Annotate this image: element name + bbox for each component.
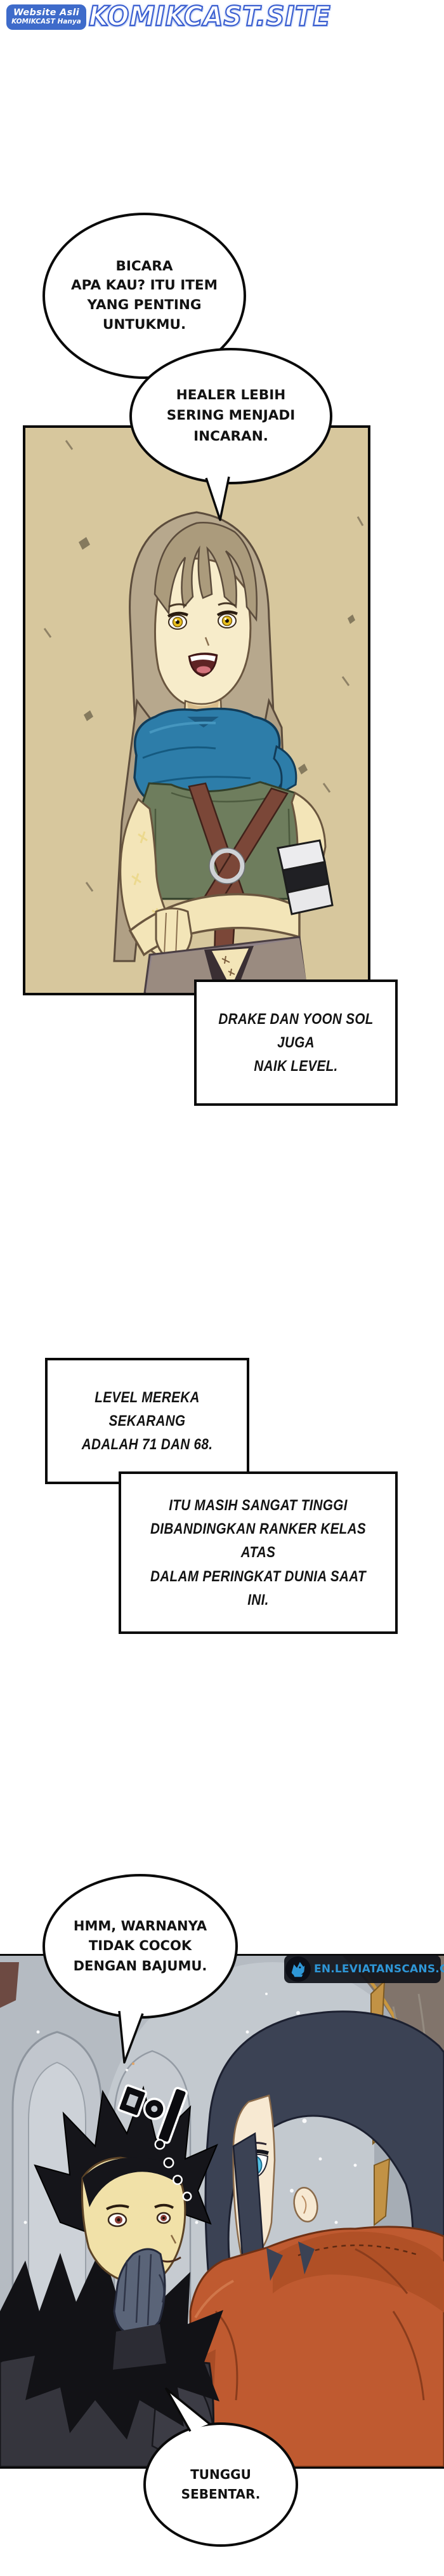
speech-bubble-4-text: TUNGGU SEBENTAR. xyxy=(181,2465,261,2504)
caption-box-level: LEVEL MEREKA SEKARANG ADALAH 71 DAN 68. xyxy=(45,1358,249,1484)
bubble-3-tail xyxy=(101,2000,152,2066)
speech-bubble-3: HMM, WARNANYA TIDAK COCOK DENGAN BAJUMU. xyxy=(42,1874,238,2019)
caption-box-drake: DRAKE DAN YOON SOL JUGA NAIK LEVEL. xyxy=(194,979,398,1106)
speech-bubble-1-text: BICARA APA KAU? ITU ITEM YANG PENTING UN… xyxy=(71,257,218,335)
girl-character-art xyxy=(190,2012,444,2467)
watermark-text: EN.LEVIATANSCANS.COM xyxy=(314,1963,444,1975)
caption-box-ranking: ITU MASIH SANGAT TINGGI DIBANDINGKAN RAN… xyxy=(119,1471,398,1634)
speech-bubble-2-text: HEALER LEBIH SERING MENJADI INCARAN. xyxy=(167,385,295,447)
site-badge-line1: Website Asli xyxy=(13,8,79,18)
speech-bubble-2: HEALER LEBIH SERING MENJADI INCARAN. xyxy=(129,348,332,484)
site-badge-line2: KOMIKCAST Hanya xyxy=(11,18,81,26)
scene-background-art xyxy=(0,1956,444,2467)
healer-character-art xyxy=(25,428,368,993)
site-badge: Website Asli KOMIKCAST Hanya xyxy=(6,4,86,30)
bubble-4-tail xyxy=(159,2380,216,2438)
speech-bubble-4: TUNGGU SEBENTAR. xyxy=(143,2422,298,2547)
manga-reader-page: Website Asli KOMIKCAST Hanya KOMIKCAST.S… xyxy=(0,0,444,2576)
bubble-2-tail xyxy=(200,467,238,524)
caption-box-drake-text: DRAKE DAN YOON SOL JUGA NAIK LEVEL. xyxy=(211,1007,381,1079)
site-logo: KOMIKCAST.SITE xyxy=(89,1,331,32)
leviatan-dragon-icon xyxy=(285,1956,311,1982)
caption-box-level-text: LEVEL MEREKA SEKARANG ADALAH 71 DAN 68. xyxy=(62,1386,233,1457)
caption-box-ranking-text: ITU MASIH SANGAT TINGGI DIBANDINGKAN RAN… xyxy=(140,1494,376,1612)
speech-bubble-3-text: HMM, WARNANYA TIDAK COCOK DENGAN BAJUMU. xyxy=(74,1916,207,1977)
manga-panel-2 xyxy=(0,1954,444,2469)
manga-panel-1 xyxy=(23,425,370,995)
watermark-tag: EN.LEVIATANSCANS.COM xyxy=(284,1955,441,1983)
